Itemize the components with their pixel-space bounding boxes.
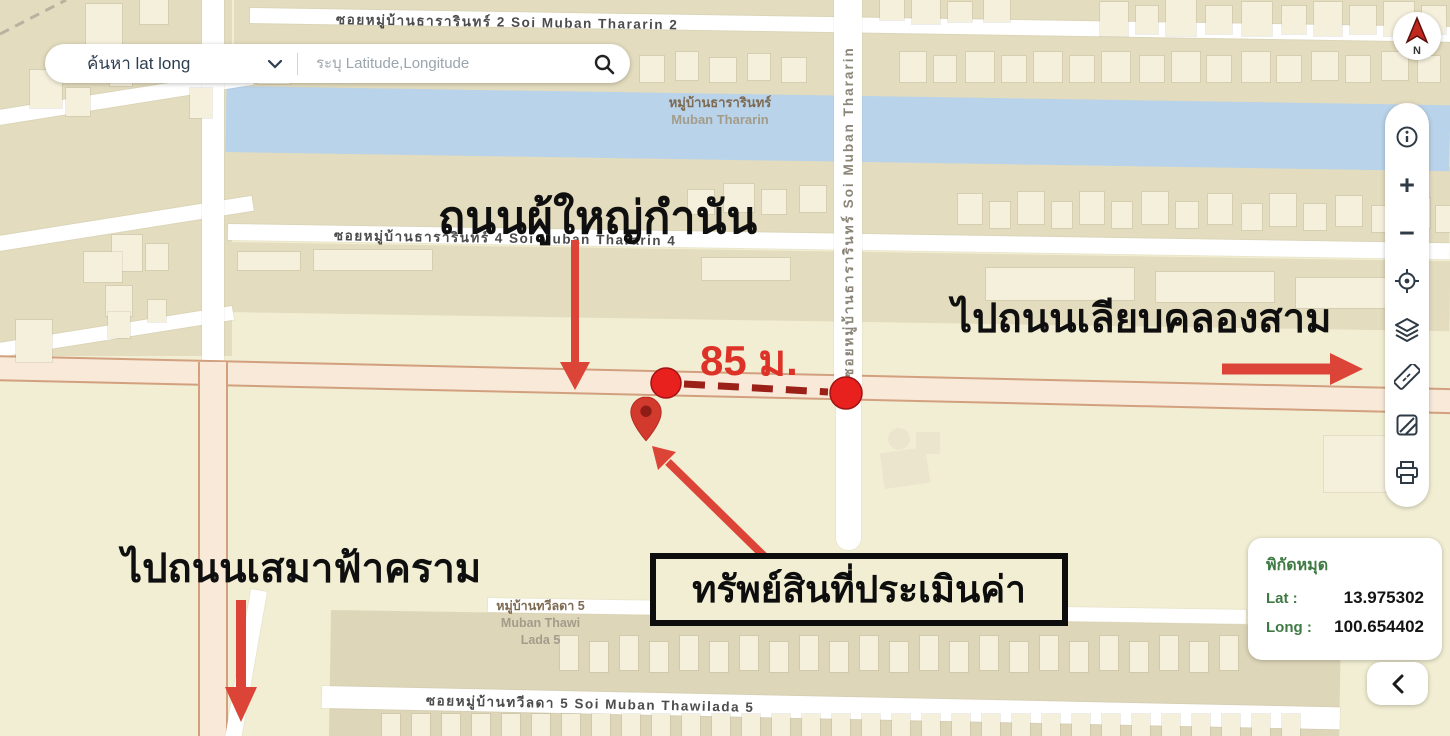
building: [1034, 52, 1062, 82]
building: [1100, 2, 1128, 36]
building: [830, 642, 848, 672]
annotation-distance: 85 ม.: [700, 328, 798, 394]
road: [225, 589, 267, 736]
building: [934, 56, 956, 82]
building: [702, 258, 790, 280]
village-label-thai: หมู่บ้านธารารินทร์: [630, 94, 810, 111]
building: [592, 714, 610, 736]
building: [1242, 52, 1270, 82]
building: [1102, 714, 1120, 736]
building: [1312, 52, 1338, 80]
building: [1140, 56, 1164, 82]
building: [562, 714, 580, 736]
ruler-icon: [1394, 364, 1420, 390]
building: [890, 642, 908, 672]
building: [710, 58, 736, 82]
printer-icon: [1394, 460, 1420, 486]
long-row: Long : 100.654402: [1266, 617, 1424, 637]
locate-button[interactable]: [1390, 264, 1424, 298]
arrow-right-to-road: [1222, 353, 1363, 385]
building: [980, 636, 998, 670]
building: [640, 56, 664, 82]
zoom-in-button[interactable]: +: [1390, 168, 1424, 202]
building: [888, 428, 910, 450]
building: [782, 58, 806, 82]
building: [1070, 642, 1088, 672]
long-label: Long :: [1266, 619, 1312, 636]
info-button[interactable]: [1390, 120, 1424, 154]
street-label-vertical: ซอยหมู่บ้านธารารินทร์ Soi Muban Thararin: [837, 27, 859, 397]
pin-icon[interactable]: [631, 397, 661, 441]
building: [880, 0, 904, 20]
building: [1418, 56, 1440, 82]
building: [748, 54, 770, 80]
north-arrow-icon: N: [1397, 15, 1437, 57]
building: [832, 714, 850, 736]
building: [1242, 2, 1272, 36]
building: [1080, 192, 1104, 224]
building: [1166, 0, 1196, 36]
layers-button[interactable]: [1390, 312, 1424, 346]
building: [238, 252, 300, 270]
building: [1040, 636, 1058, 670]
building: [682, 714, 700, 736]
building: [770, 642, 788, 672]
building: [1072, 714, 1090, 736]
building: [1052, 202, 1072, 228]
building: [382, 714, 400, 736]
building: [652, 714, 670, 736]
building: [1190, 642, 1208, 672]
building: [950, 642, 968, 672]
building: [1207, 56, 1231, 82]
building: [802, 714, 820, 736]
annotation-to-road-right: ไปถนนเลียบคลองสาม: [952, 286, 1332, 350]
building: [190, 88, 212, 118]
building: [800, 636, 818, 670]
building: [1112, 202, 1132, 228]
property-box: ทรัพย์สินที่ประเมินค่า: [650, 553, 1068, 626]
building: [1136, 6, 1158, 34]
building: [762, 190, 786, 214]
building: [86, 4, 122, 46]
building: [16, 320, 52, 362]
village-label-thai: หมู่บ้านทวีลดา 5: [468, 598, 613, 615]
building: [1336, 196, 1362, 226]
building: [966, 52, 994, 82]
building: [1242, 204, 1262, 230]
building: [772, 714, 790, 736]
building: [1162, 714, 1180, 736]
building: [1160, 636, 1178, 670]
compass-n-label: N: [1413, 45, 1421, 57]
building: [1132, 714, 1150, 736]
zoom-out-button[interactable]: −: [1390, 216, 1424, 250]
building: [1012, 714, 1030, 736]
info-icon: [1395, 125, 1419, 149]
layers-icon: [1394, 316, 1420, 342]
building: [1220, 636, 1238, 670]
building: [680, 636, 698, 670]
building: [412, 714, 430, 736]
measure-button[interactable]: [1390, 360, 1424, 394]
building: [990, 202, 1010, 228]
building: [892, 714, 910, 736]
building: [948, 2, 972, 22]
building: [1314, 2, 1342, 36]
building: [1010, 642, 1028, 672]
village-label-en: Muban Thawi: [468, 615, 613, 632]
building: [1018, 192, 1044, 224]
building: [314, 250, 432, 270]
building: [880, 447, 931, 489]
chevron-down-icon: [267, 59, 283, 69]
building: [1172, 52, 1200, 82]
building: [66, 88, 90, 116]
long-value: 100.654402: [1334, 617, 1424, 637]
building: [1130, 642, 1148, 672]
chevron-left-icon: [1391, 674, 1405, 694]
building: [84, 252, 122, 282]
search-mode-label: ค้นหา lat long: [87, 50, 190, 77]
collapse-panel-button[interactable]: [1367, 662, 1428, 705]
building: [442, 714, 460, 736]
building: [952, 714, 970, 736]
building: [740, 636, 758, 670]
search-button[interactable]: [578, 52, 630, 76]
building: [1208, 194, 1232, 224]
search-icon: [593, 53, 615, 75]
latlong-input[interactable]: [298, 55, 578, 72]
building: [1206, 6, 1232, 34]
building: [676, 52, 698, 80]
village-label-thawilada: หมู่บ้านทวีลดา 5 Muban Thawi Lada 5: [468, 598, 613, 649]
building: [984, 0, 1010, 22]
map-canvas[interactable]: ซอยหมู่บ้านธารารินทร์ 2 Soi Muban Tharar…: [0, 0, 1450, 736]
building: [1100, 636, 1118, 670]
annotation-road-name: ถนนผู้ใหญ่กำนัน: [438, 181, 757, 253]
building: [1252, 714, 1270, 736]
annotation-to-road-left: ไปถนนเสมาฟ้าคราม: [122, 536, 481, 600]
building: [1222, 714, 1240, 736]
compass[interactable]: N: [1393, 12, 1441, 60]
search-bar: ค้นหา lat long: [45, 44, 630, 83]
map-tool-panel: + −: [1385, 103, 1429, 507]
building: [140, 0, 168, 24]
locate-icon: [1394, 268, 1420, 294]
building: [532, 714, 550, 736]
building: [1042, 714, 1060, 736]
building: [146, 244, 168, 270]
building: [900, 52, 926, 82]
building: [922, 714, 940, 736]
building: [1002, 56, 1026, 82]
building: [1192, 714, 1210, 736]
building: [502, 714, 520, 736]
pin-coordinates-panel: พิกัดหมุด Lat : 13.975302 Long : 100.654…: [1248, 538, 1442, 660]
building: [1282, 6, 1306, 34]
lat-value: 13.975302: [1344, 588, 1424, 608]
building: [1277, 56, 1301, 82]
building: [958, 194, 982, 224]
building: [862, 714, 880, 736]
building: [710, 642, 728, 672]
building: [1350, 6, 1376, 34]
building: [982, 714, 1000, 736]
building: [622, 714, 640, 736]
village-label-thararin: หมู่บ้านธารารินทร์ Muban Thararin: [630, 94, 810, 128]
village-label-en: Muban Thararin: [630, 111, 810, 128]
building: [920, 636, 938, 670]
building: [860, 636, 878, 670]
basemap-button[interactable]: [1390, 408, 1424, 442]
map-sheet-icon: [1395, 413, 1419, 437]
lat-row: Lat : 13.975302: [1266, 588, 1424, 608]
building: [108, 312, 130, 338]
building: [1270, 194, 1296, 226]
building: [472, 714, 490, 736]
search-mode-dropdown[interactable]: ค้นหา lat long: [45, 50, 297, 77]
building: [1142, 192, 1168, 224]
building: [148, 300, 166, 322]
print-button[interactable]: [1390, 456, 1424, 490]
arrow-to-property-pin: [652, 446, 765, 557]
coord-panel-title: พิกัดหมุด: [1266, 553, 1424, 578]
building: [912, 0, 940, 24]
building: [620, 636, 638, 670]
building: [1436, 206, 1450, 232]
lat-label: Lat :: [1266, 590, 1298, 607]
building: [1304, 204, 1326, 230]
building: [650, 642, 668, 672]
building: [1346, 56, 1370, 82]
building: [1176, 202, 1198, 228]
village-label-en: Lada 5: [468, 632, 613, 649]
building: [1282, 714, 1300, 736]
building: [800, 186, 826, 212]
building: [1070, 56, 1094, 82]
property-box-label: ทรัพย์สินที่ประเมินค่า: [692, 560, 1026, 619]
building: [1102, 52, 1130, 82]
road: [836, 392, 861, 550]
